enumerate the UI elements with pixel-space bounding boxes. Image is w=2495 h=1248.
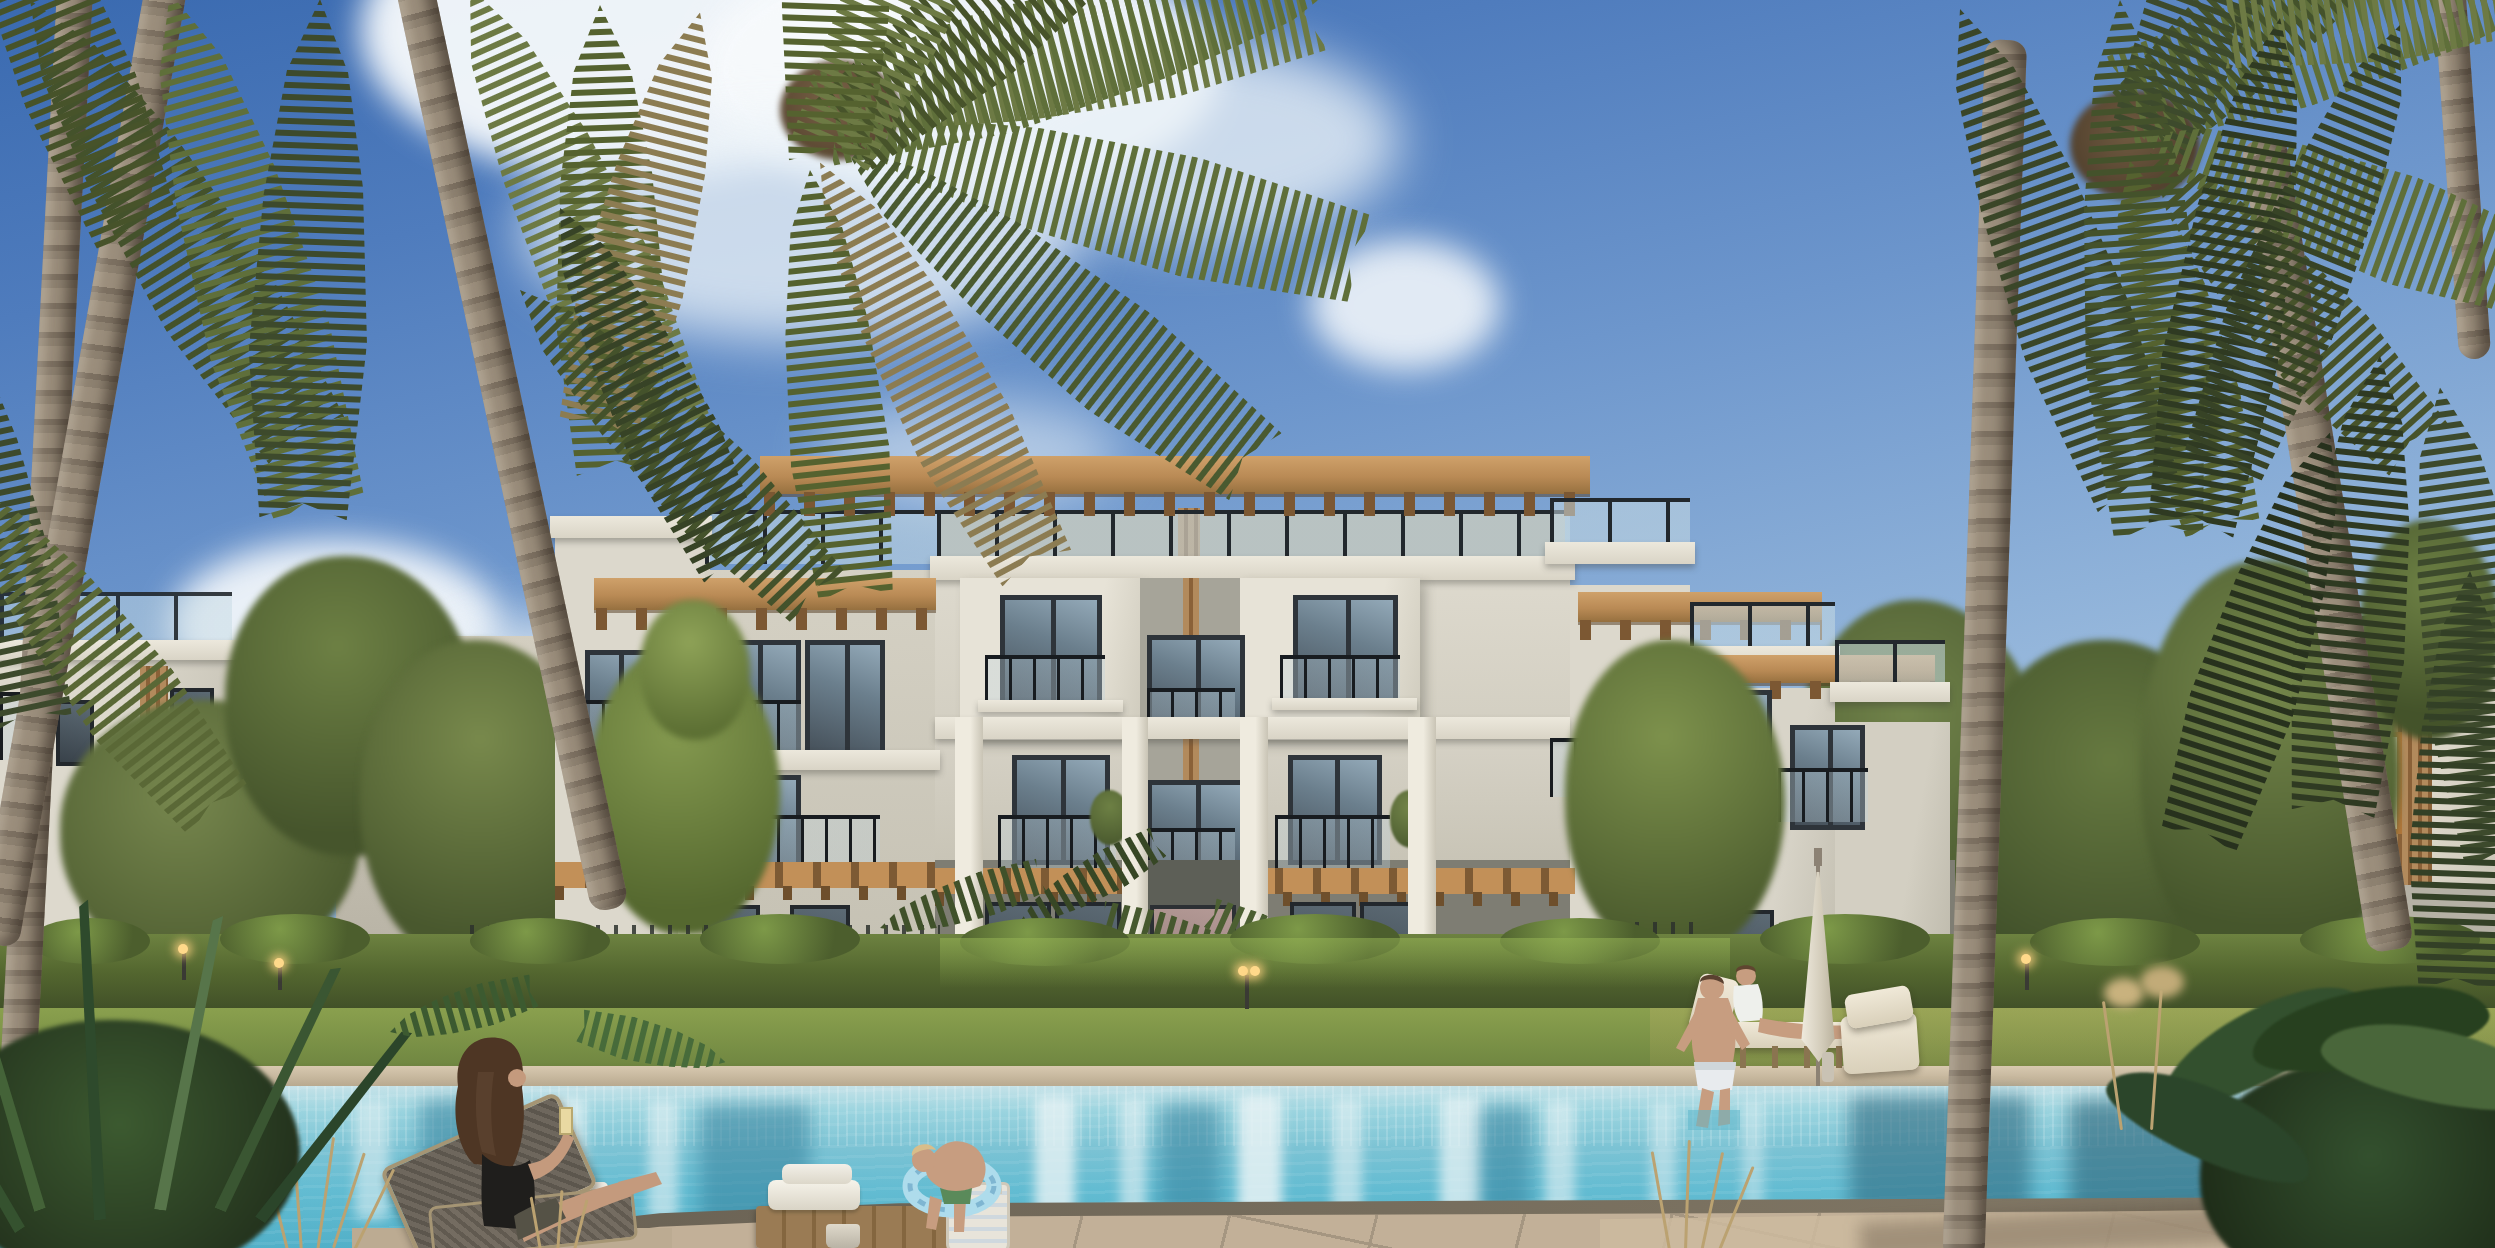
step2-terrace-railing — [1690, 602, 1835, 652]
bollard-light-glow — [1238, 966, 1248, 976]
hedge-bump — [1760, 914, 1930, 964]
child-swim-ring — [896, 1108, 1006, 1248]
window-leftmid-b — [805, 640, 885, 762]
pampas-plume — [2104, 978, 2144, 1008]
towel-stack — [768, 1180, 860, 1210]
hedge-bump — [470, 918, 610, 964]
tree-front-facade — [640, 600, 750, 740]
water-bottle — [1822, 1052, 1834, 1082]
woman-left — [420, 1032, 680, 1248]
bollard-light — [2025, 962, 2029, 990]
step1-cornice — [1545, 542, 1695, 564]
palm-frond — [243, 0, 379, 521]
balcony-rail-mid-right — [1275, 815, 1390, 871]
bollard-light-glow — [1250, 966, 1260, 976]
bollard-light — [278, 966, 282, 990]
main-cornice — [930, 556, 1575, 580]
bay-lip-left — [978, 700, 1123, 712]
balcony-rail-right-step2 — [1778, 768, 1868, 822]
bay-lip-right — [1272, 698, 1417, 710]
umbrella-tip — [1814, 848, 1822, 866]
bollard-light-glow — [2021, 954, 2031, 964]
bollard-light-glow — [274, 958, 284, 968]
bollard-light — [1245, 975, 1249, 1009]
bucket — [826, 1224, 860, 1248]
pampas-plume — [2140, 966, 2184, 998]
towel-stack — [782, 1164, 852, 1184]
hedge-bump — [700, 914, 860, 964]
tree-front-right — [1565, 640, 1785, 960]
step3-cornice — [1830, 682, 1950, 702]
left-wing-pergola-rafters — [596, 608, 936, 630]
man-pool-edge-right — [1652, 972, 1772, 1132]
bollard-light-glow — [178, 944, 188, 954]
step3-terrace-railing — [1835, 640, 1945, 688]
resort-rendering-scene — [0, 0, 2495, 1248]
hedge-bump — [220, 914, 370, 964]
hedge-lit-overlay — [940, 938, 1730, 988]
juliet-rail-top-left — [985, 655, 1105, 706]
juliet-rail-top-right — [1280, 655, 1400, 704]
hedge-bump — [2030, 918, 2200, 966]
bollard-light — [182, 952, 186, 980]
